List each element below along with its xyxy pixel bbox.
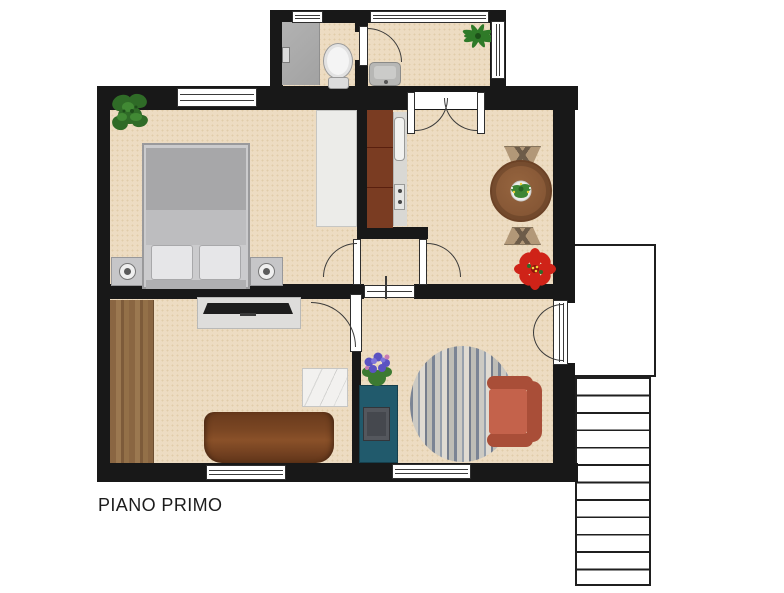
french-door-frame-right (477, 92, 485, 134)
sofa (204, 412, 334, 463)
sink-basin (374, 66, 396, 79)
stove-icon (394, 184, 405, 210)
armchair-seat (489, 389, 527, 434)
stair-landing (573, 244, 656, 377)
floor-label: PIANO PRIMO (98, 495, 222, 516)
cabinet-divider (367, 147, 393, 148)
sink-icon (369, 62, 401, 86)
burner-icon (398, 189, 402, 193)
toilet-tank (328, 77, 349, 89)
coffee-table (302, 368, 348, 407)
dining-door-frame (419, 239, 427, 285)
lamp-icon (119, 263, 136, 280)
kitchen-cabinets (367, 110, 393, 228)
wall-middle-right (414, 284, 553, 299)
lamp-icon (258, 263, 275, 280)
study-room-window (392, 464, 471, 479)
wardrobe (316, 110, 357, 227)
tv-foot (240, 313, 256, 316)
bed-duvet (146, 148, 246, 210)
window (292, 11, 323, 23)
french-door-frame-left (407, 92, 415, 134)
bed-headboard (146, 280, 246, 289)
nightstand-right (250, 257, 283, 286)
wall-exterior-left (97, 86, 110, 482)
wood-cabinet-strip (110, 300, 154, 463)
nightstand-left (111, 257, 143, 286)
armchair (487, 376, 543, 447)
hall-bottom-door-frame (364, 285, 415, 298)
bedroom-window (177, 88, 257, 107)
staircase (575, 377, 651, 586)
pillow (151, 245, 193, 280)
pillow (199, 245, 241, 280)
kitchen-sink-icon (394, 117, 405, 161)
bed-sheet (146, 210, 246, 245)
burner-icon (398, 200, 402, 204)
living-room-window (206, 465, 286, 480)
wall-exterior-right (553, 86, 575, 482)
hall-door-leaf (385, 276, 387, 299)
wall-exterior-top (97, 86, 578, 110)
armchair-back (527, 381, 542, 442)
wall-exterior-bottom (97, 463, 578, 482)
laptop-icon (363, 407, 390, 441)
shower-mixer-icon (282, 47, 290, 63)
dining-table (490, 160, 552, 222)
toilet-icon (323, 43, 353, 79)
window (370, 11, 489, 23)
sink-drain (384, 80, 388, 84)
window (491, 21, 505, 79)
wall-hall-top (357, 227, 428, 239)
cabinet-divider (367, 187, 393, 188)
floor-plan: PIANO PRIMO (0, 0, 784, 593)
